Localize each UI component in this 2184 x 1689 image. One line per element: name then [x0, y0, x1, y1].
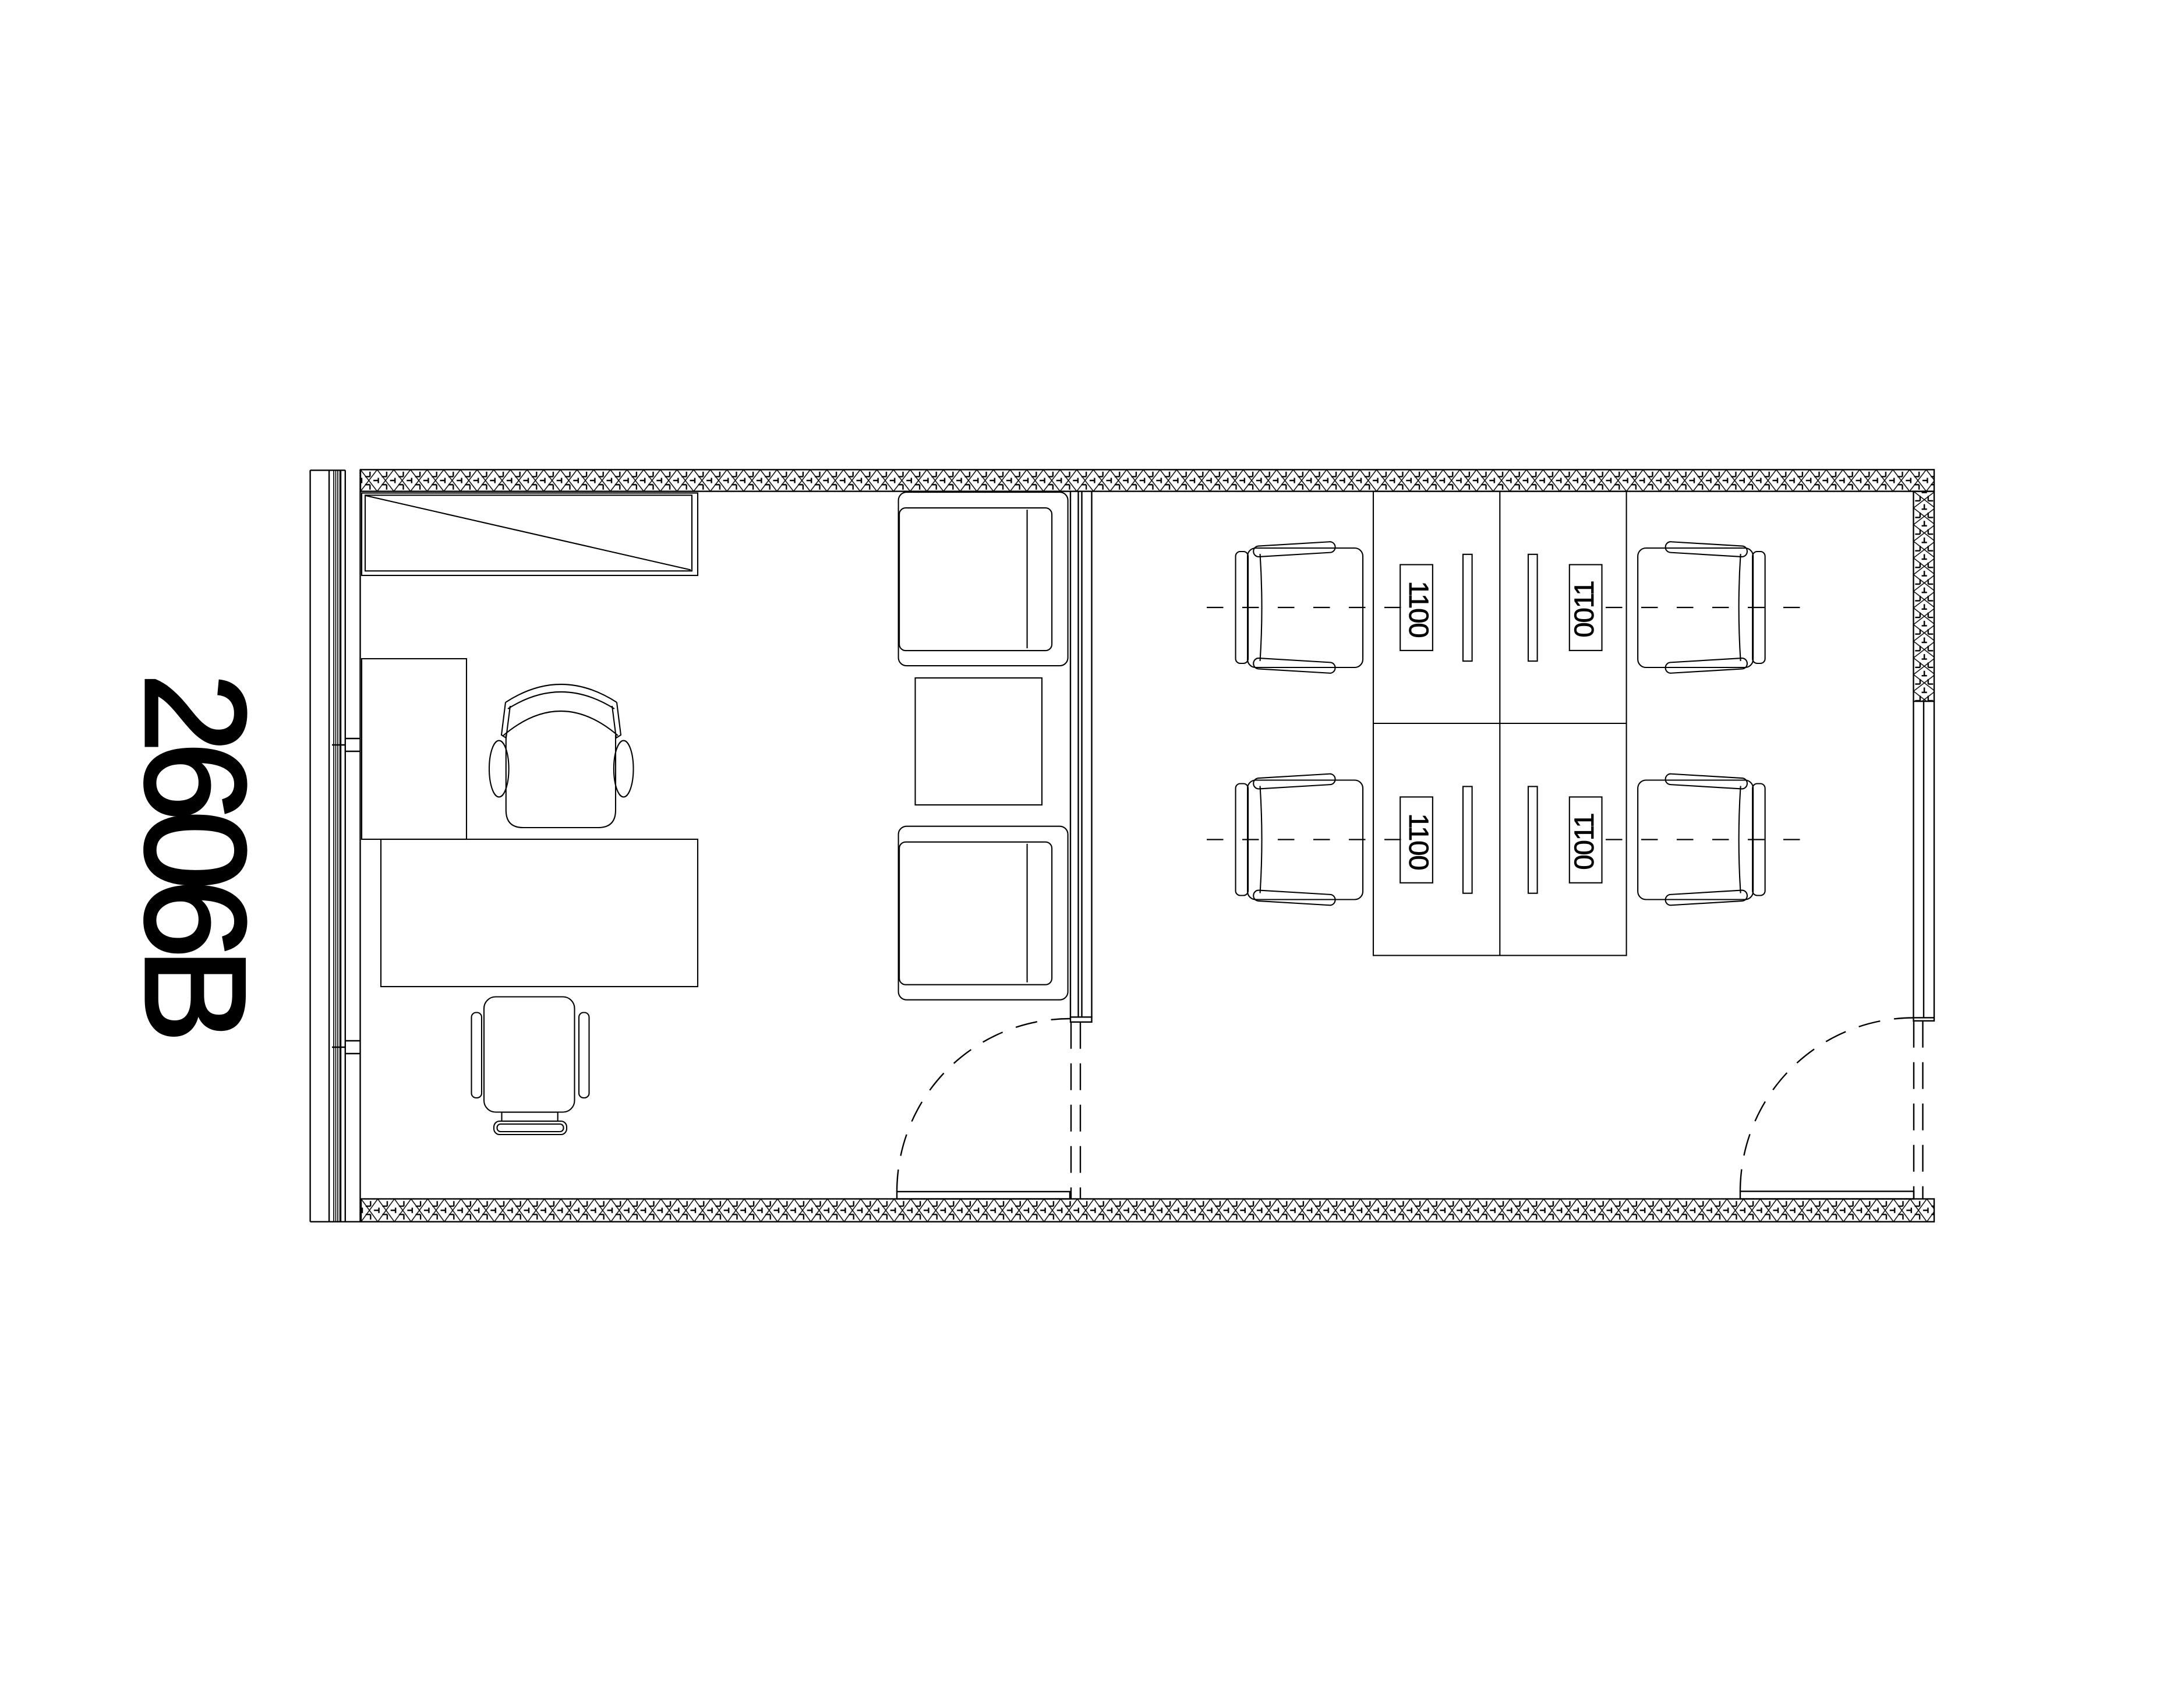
svg-text:0011: 0011: [1568, 813, 1599, 870]
svg-text:0011: 0011: [1568, 581, 1599, 637]
svg-text:1100: 1100: [1404, 581, 1434, 637]
svg-text:1100: 1100: [1404, 813, 1434, 870]
svg-text:2606B: 2606B: [116, 673, 275, 1036]
